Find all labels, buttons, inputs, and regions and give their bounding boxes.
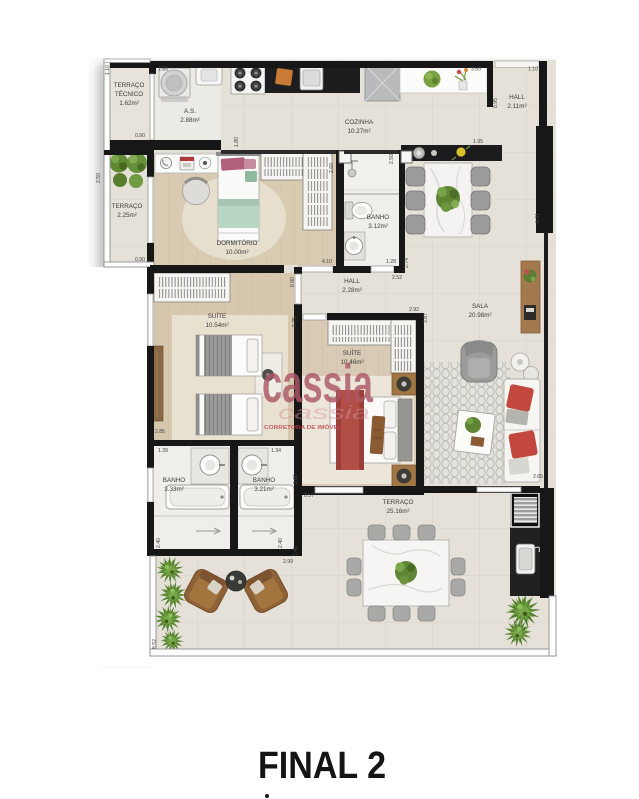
- svg-text:SALA: SALA: [472, 303, 489, 310]
- svg-text:0.57: 0.57: [304, 493, 314, 499]
- svg-text:CORRETORA DE IMÓVEIS: CORRETORA DE IMÓVEIS: [264, 423, 344, 431]
- svg-text:TERRAÇO: TERRAÇO: [114, 82, 145, 89]
- svg-text:2.52: 2.52: [392, 275, 402, 281]
- svg-text:SUÍTE: SUÍTE: [208, 311, 227, 320]
- svg-text:DORMITÓRIO: DORMITÓRIO: [217, 238, 258, 247]
- svg-text:10.54m²: 10.54m²: [205, 322, 228, 329]
- svg-text:1.95: 1.95: [473, 139, 483, 145]
- svg-text:4.10: 4.10: [322, 259, 332, 265]
- svg-text:FINAL 2: FINAL 2: [258, 745, 386, 787]
- svg-text:3.33m²: 3.33m²: [164, 486, 184, 493]
- svg-text:25.16m²: 25.16m²: [386, 508, 409, 515]
- svg-text:2.40: 2.40: [156, 538, 162, 548]
- svg-text:2.28m²: 2.28m²: [342, 287, 362, 294]
- svg-text:1.10: 1.10: [528, 67, 538, 73]
- svg-text:2.60: 2.60: [329, 163, 335, 173]
- svg-text:1.45: 1.45: [293, 546, 299, 556]
- svg-text:TÉCNICO: TÉCNICO: [115, 89, 143, 98]
- svg-text:BANHO: BANHO: [367, 214, 389, 221]
- svg-text:1.62m²: 1.62m²: [119, 100, 139, 107]
- svg-text:2.80: 2.80: [293, 474, 299, 484]
- svg-text:BANHO: BANHO: [163, 477, 185, 484]
- svg-text:3.12m²: 3.12m²: [368, 223, 388, 230]
- svg-text:HALL: HALL: [509, 94, 525, 101]
- svg-text:1.28: 1.28: [386, 259, 396, 265]
- svg-text:2.85: 2.85: [155, 429, 165, 435]
- svg-text:1.10: 1.10: [105, 65, 111, 75]
- svg-text:0.90: 0.90: [135, 133, 145, 139]
- svg-text:1.34: 1.34: [271, 448, 281, 454]
- svg-text:2.74: 2.74: [404, 258, 410, 268]
- svg-text:A.S.: A.S.: [184, 108, 196, 115]
- svg-text:0.90: 0.90: [290, 277, 296, 287]
- svg-text:2.99: 2.99: [283, 559, 293, 565]
- svg-text:2.40: 2.40: [278, 538, 284, 548]
- svg-text:20.98m²: 20.98m²: [468, 312, 491, 319]
- svg-text:3.75: 3.75: [292, 317, 298, 327]
- svg-text:BANHO: BANHO: [253, 477, 275, 484]
- svg-text:cassia: cassia: [278, 403, 370, 424]
- svg-text:1.80: 1.80: [158, 67, 168, 73]
- svg-text:TERRAÇO: TERRAÇO: [383, 499, 414, 506]
- svg-text:2.88m²: 2.88m²: [180, 117, 200, 124]
- svg-text:10.00m²: 10.00m²: [225, 249, 248, 256]
- svg-text:8.52: 8.52: [152, 639, 158, 649]
- svg-text:2.92: 2.92: [409, 307, 419, 313]
- svg-text:TERRAÇO: TERRAÇO: [112, 203, 143, 210]
- svg-text:COZINHA: COZINHA: [345, 119, 374, 126]
- svg-text:0.31: 0.31: [535, 213, 541, 223]
- svg-text:2.25m²: 2.25m²: [117, 212, 137, 219]
- svg-text:2.11m²: 2.11m²: [507, 103, 526, 110]
- svg-text:0.95: 0.95: [493, 98, 499, 108]
- svg-text:1.80: 1.80: [234, 137, 240, 147]
- svg-text:HALL: HALL: [344, 278, 360, 285]
- svg-text:3.87: 3.87: [423, 313, 429, 323]
- svg-text:10.27m²: 10.27m²: [347, 128, 370, 135]
- svg-text:0.90: 0.90: [135, 257, 145, 263]
- svg-text:2.50: 2.50: [96, 173, 102, 183]
- svg-text:2.50: 2.50: [389, 154, 395, 164]
- svg-text:3.60: 3.60: [471, 67, 481, 73]
- svg-text:1.39: 1.39: [158, 448, 168, 454]
- svg-text:2.65: 2.65: [533, 474, 543, 480]
- svg-text:3.21m²: 3.21m²: [254, 486, 274, 493]
